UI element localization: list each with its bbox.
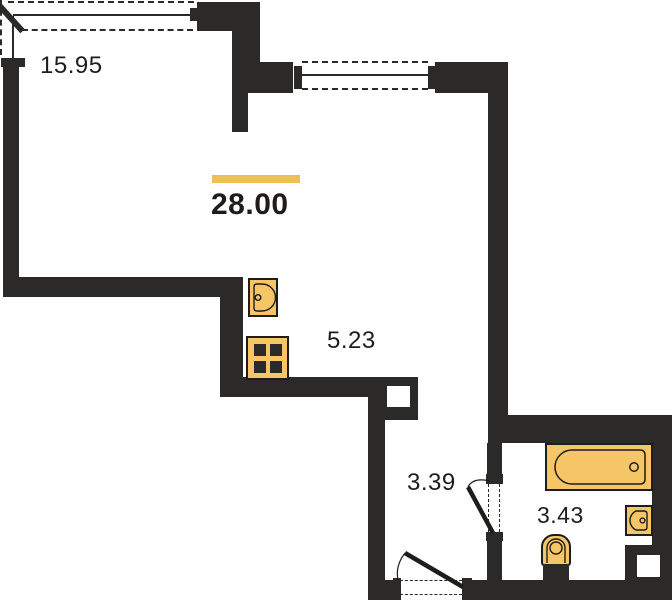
duct-bathroom-icon	[637, 555, 660, 577]
window-kitchen-cap-left	[294, 66, 302, 89]
window-kitchen-glass-icon	[302, 74, 428, 76]
toilet-icon	[541, 534, 571, 580]
wall-right-outer	[488, 93, 508, 417]
wall-top-right-block	[435, 62, 508, 93]
toilet-tank	[543, 564, 569, 580]
duct-kitchen-icon	[387, 386, 410, 407]
corner-window-glass-icon	[12, 16, 14, 60]
total-area-label: 28.00	[211, 190, 289, 220]
washbasin-icon	[625, 505, 653, 536]
wall-bathroom-top	[488, 415, 672, 443]
wall-bathroom-left-lower	[487, 541, 502, 580]
wall-top-stub	[232, 93, 248, 132]
hallway-area-label: 3.39	[407, 471, 456, 495]
stove-icon	[246, 336, 289, 380]
wall-kitchen-bottom	[220, 377, 385, 397]
wall-left-outer	[3, 58, 19, 297]
window-kitchen-outer-icon	[302, 61, 428, 63]
kitchen-area-label: 5.23	[327, 329, 376, 353]
wall-hallway-left	[368, 377, 385, 600]
window-living-outer-icon	[8, 1, 194, 3]
wall-bathroom-left-upper	[487, 443, 502, 475]
bathroom-door-icon	[458, 473, 506, 543]
kitchen-sink-icon	[248, 278, 278, 317]
wall-top-vertical	[232, 30, 260, 93]
wall-top-arm	[260, 62, 293, 93]
floorplan-canvas: 15.95 28.00 5.23 3.39 3.43	[0, 0, 672, 600]
bathroom-area-label: 3.43	[537, 504, 584, 527]
wall-top-block	[197, 2, 260, 31]
window-living-glass-icon	[13, 14, 192, 16]
living-room-area-label: 15.95	[40, 54, 103, 78]
bathtub-icon	[545, 443, 653, 491]
window-living-inner-icon	[22, 29, 193, 31]
total-area-highlight-bar	[212, 175, 300, 183]
wall-living-bottom	[3, 277, 243, 297]
entrance-door-icon	[390, 546, 470, 596]
window-kitchen-inner-icon	[302, 88, 428, 90]
